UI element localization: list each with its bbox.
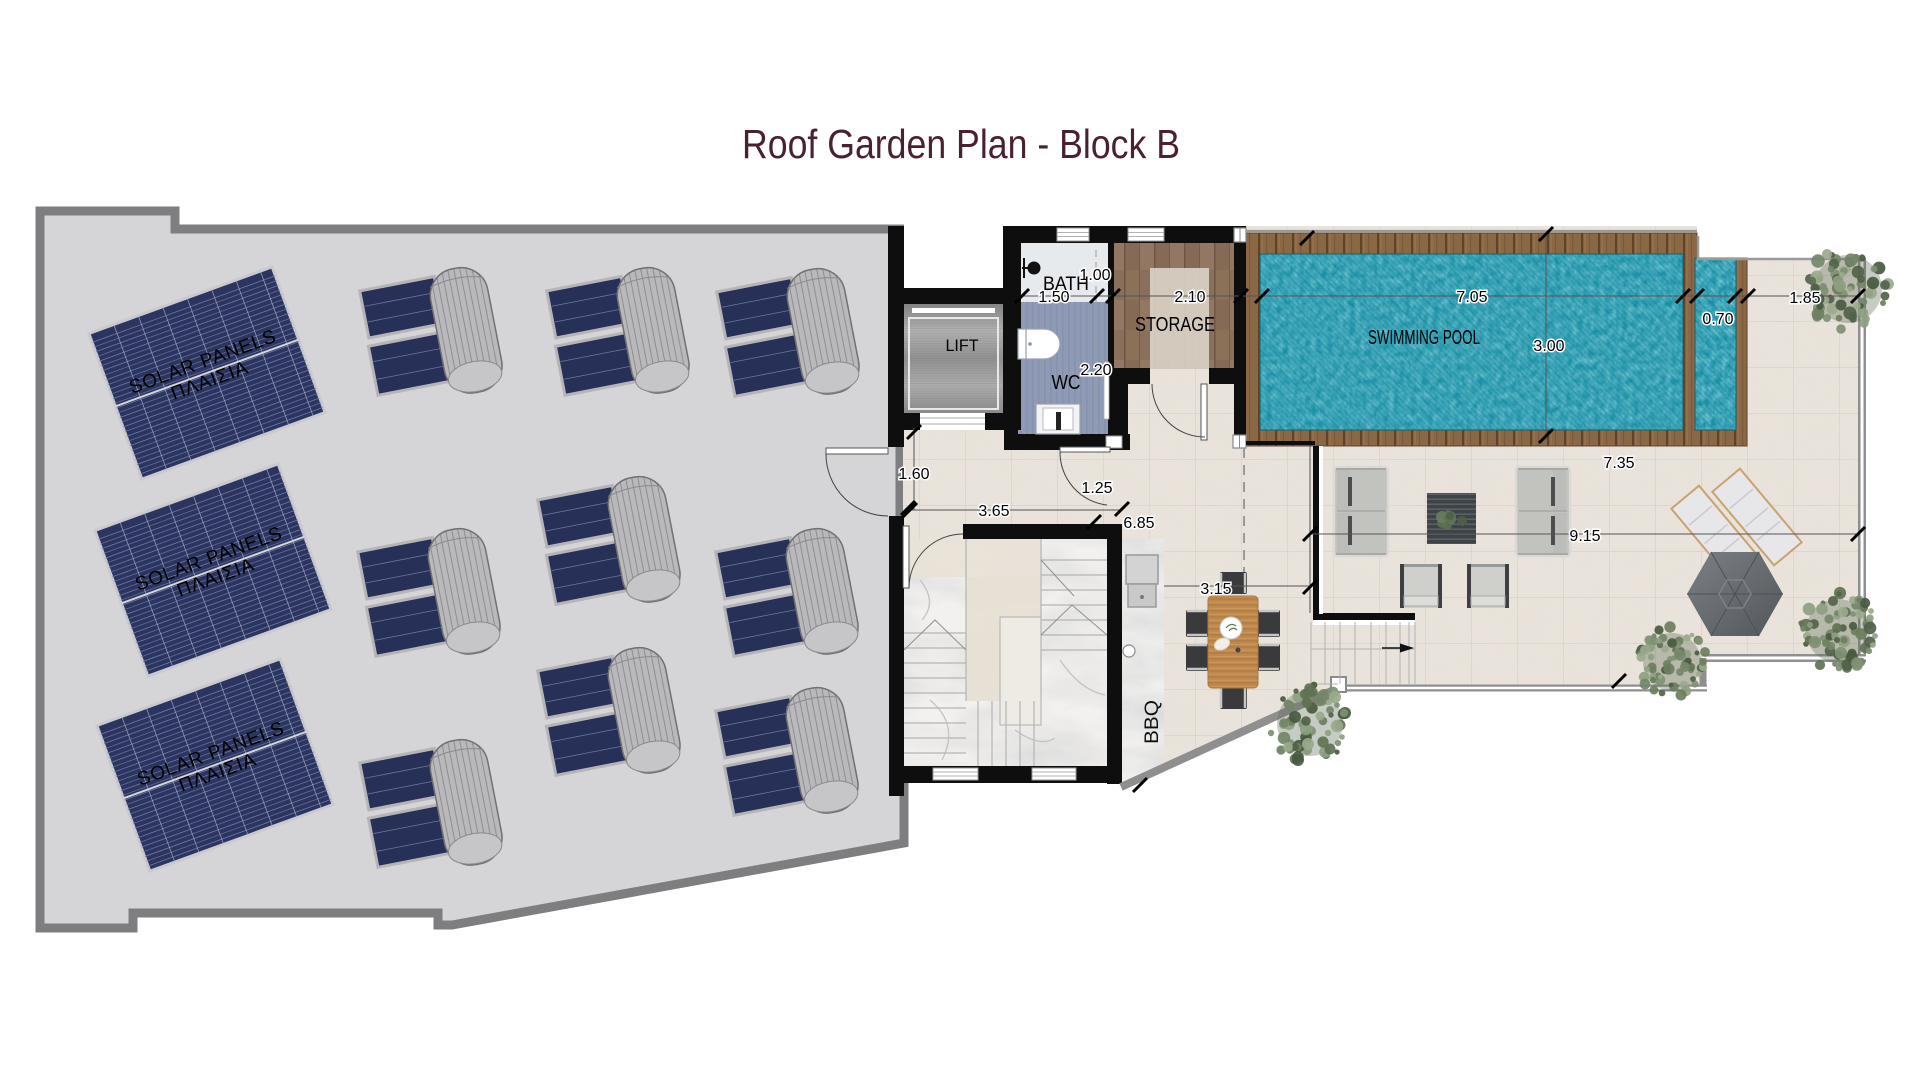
svg-text:0.70: 0.70 <box>1702 311 1733 328</box>
svg-text:BBQ: BBQ <box>1142 700 1163 744</box>
svg-text:7.05: 7.05 <box>1456 289 1487 306</box>
svg-text:3.00: 3.00 <box>1533 338 1564 355</box>
svg-text:1.60: 1.60 <box>898 466 929 483</box>
svg-text:Roof Garden Plan - Block B: Roof Garden Plan - Block B <box>742 121 1180 167</box>
svg-text:1.25: 1.25 <box>1081 480 1112 497</box>
svg-text:2.20: 2.20 <box>1080 362 1111 379</box>
svg-text:BATH: BATH <box>1043 274 1089 295</box>
svg-text:3.65: 3.65 <box>978 503 1009 520</box>
svg-text:SWIMMING POOL: SWIMMING POOL <box>1368 327 1480 349</box>
svg-text:1.85: 1.85 <box>1789 290 1820 307</box>
svg-text:7.35: 7.35 <box>1603 455 1634 472</box>
svg-text:9.15: 9.15 <box>1569 528 1600 545</box>
svg-text:6.85: 6.85 <box>1123 515 1154 532</box>
svg-text:STORAGE: STORAGE <box>1135 314 1215 336</box>
svg-text:2.10: 2.10 <box>1174 289 1205 306</box>
svg-text:WC: WC <box>1052 372 1081 394</box>
svg-text:3.15: 3.15 <box>1200 581 1231 598</box>
svg-text:LIFT: LIFT <box>946 336 979 355</box>
